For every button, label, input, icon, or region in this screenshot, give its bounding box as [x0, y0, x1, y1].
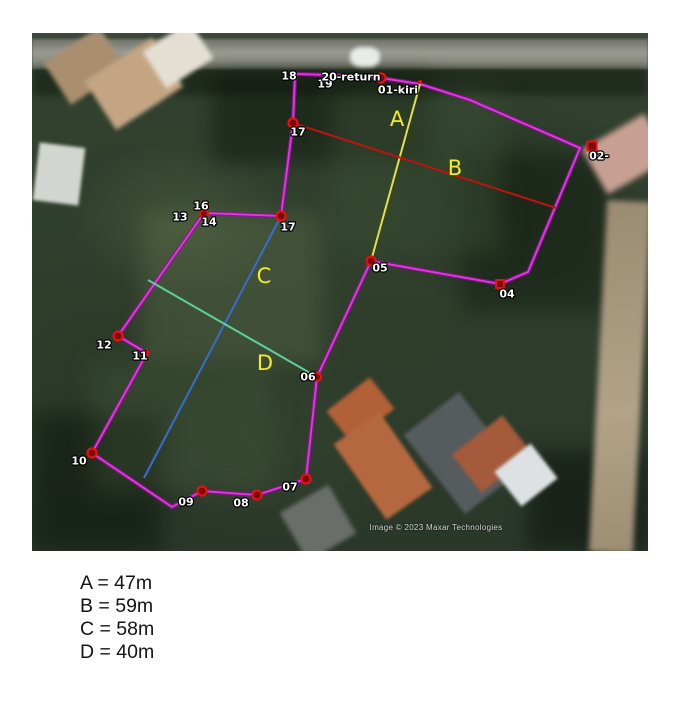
point-label-02: 02- [589, 150, 609, 163]
point-label-07: 07 [282, 481, 297, 494]
measure-line-D [148, 280, 317, 377]
measurement-legend: A = 47m B = 59m C = 58m D = 40m [80, 572, 154, 664]
point-label-08: 08 [233, 497, 248, 510]
marker-10 [88, 449, 97, 458]
legend-line-d: D = 40m [80, 641, 154, 664]
marker-08 [253, 491, 262, 500]
survey-overlay: 181920-return01-kiri02-04050607080910111… [32, 33, 648, 551]
measure-label-B: B [448, 156, 462, 180]
measure-line-C [144, 216, 281, 478]
point-label-17-mid: 17 [280, 221, 295, 234]
point-label-11: 11 [132, 350, 147, 363]
point-label-12: 12 [96, 339, 111, 352]
point-label-01-kiri: 01-kiri [378, 84, 418, 97]
marker-07 [302, 475, 311, 484]
measure-line-B [293, 123, 556, 208]
marker-01-kiri [418, 80, 422, 84]
legend-line-b: B = 59m [80, 595, 154, 618]
point-label-09: 09 [178, 496, 193, 509]
point-label-16: 16 [193, 200, 209, 213]
legend-line-c: C = 58m [80, 618, 154, 641]
point-label-20-return: 20-return [321, 71, 380, 84]
point-label-18: 18 [281, 70, 296, 83]
measure-label-D: D [257, 351, 273, 375]
marker-12 [114, 332, 123, 341]
legend-line-a: A = 47m [80, 572, 154, 595]
point-label-14: 14 [201, 216, 217, 229]
point-label-05: 05 [372, 262, 387, 275]
page: 181920-return01-kiri02-04050607080910111… [0, 0, 679, 720]
point-label-06: 06 [300, 371, 316, 384]
point-label-10: 10 [71, 455, 87, 468]
point-label-17-top: 17 [290, 126, 305, 139]
measure-label-C: C [257, 264, 272, 288]
measure-label-A: A [390, 107, 405, 131]
point-label-13: 13 [172, 211, 187, 224]
marker-17-mid [277, 212, 286, 221]
point-label-04: 04 [499, 288, 515, 301]
map-attribution: Image © 2023 Maxar Technologies [306, 523, 566, 532]
marker-09 [198, 487, 207, 496]
satellite-map: 181920-return01-kiri02-04050607080910111… [32, 33, 648, 551]
